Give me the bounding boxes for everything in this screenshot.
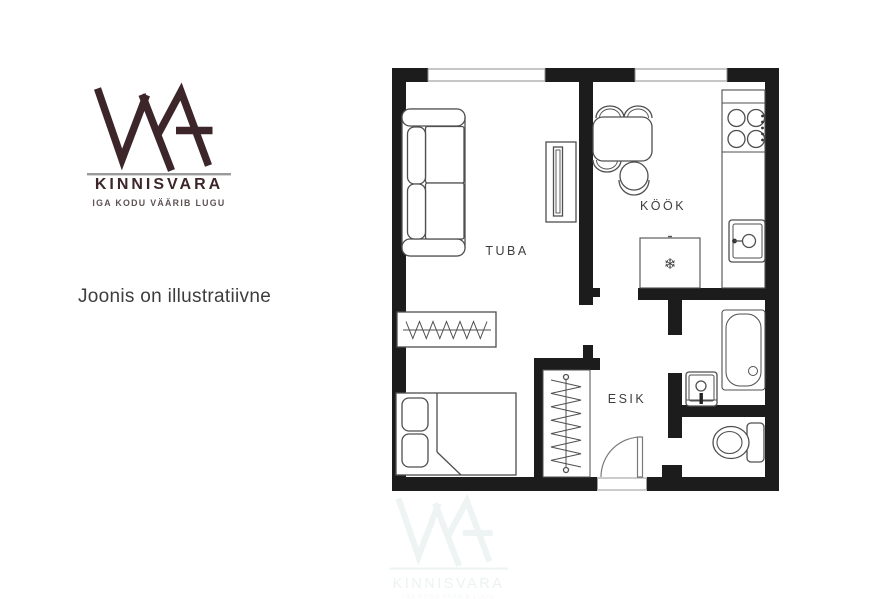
bathroom-sink-drain [696, 381, 706, 391]
wall-closet-top [534, 358, 600, 370]
sofa-seat-2 [426, 183, 465, 239]
tv-stand [546, 142, 576, 222]
dining-table [593, 117, 652, 161]
burner-3 [728, 131, 745, 148]
closet-rail-end-bottom [564, 468, 569, 473]
window-tuba [428, 69, 545, 81]
burner-1 [728, 110, 745, 127]
sofa [402, 109, 465, 256]
room-label-kook: KÖÖK [640, 199, 686, 213]
company-tagline: IGA KODU VÄÄRIB LUGU [84, 198, 234, 208]
bathtub-basin [726, 314, 761, 386]
toilet-bowl-inner [717, 432, 742, 454]
monogram-strokes [98, 89, 213, 171]
fridge: ❄ [640, 237, 700, 289]
room-label-esik: ESIK [608, 392, 647, 406]
window-kook [635, 69, 727, 81]
kitchen-counter [722, 90, 765, 288]
sofa-armrest-bottom [402, 239, 465, 256]
room-label-tuba: TUBA [485, 244, 528, 258]
dining-chair-2 [624, 106, 652, 118]
company-logo-monogram [80, 80, 235, 180]
wall-bottom-right [647, 477, 779, 491]
wall-bath-wc-divider [668, 405, 765, 417]
entrance-door [598, 437, 647, 490]
door-leaf [638, 437, 643, 477]
illustrative-note: Joonis on illustratiivne [78, 286, 271, 308]
watermark-logo: KINNISVARA IGA KODU VÄÄRIB LUGU [385, 493, 515, 599]
bathroom-sink-tap [700, 393, 703, 404]
bathroom-sink [686, 372, 717, 406]
toilet [713, 423, 764, 462]
bed [396, 393, 516, 475]
bathtub-drain [749, 367, 758, 376]
wall-divider-stub [593, 288, 600, 297]
door-swing-arc [601, 437, 641, 477]
dining-chair-1 [596, 106, 624, 118]
wall-closet-right-stub [583, 345, 593, 358]
wall-bathroom-left-upper [668, 288, 682, 335]
kitchen-sink-drain [743, 235, 756, 248]
wardrobe [397, 312, 496, 347]
closet-rail-end-top [564, 375, 569, 380]
watermark-company-name: KINNISVARA [393, 576, 505, 592]
bed-pillow-2 [402, 434, 428, 467]
floor-plan: ❄ [392, 68, 779, 491]
watermark-divider-line [390, 568, 508, 570]
tv-screen-inner [556, 150, 560, 213]
wall-right [765, 68, 779, 491]
wall-wc-stub [662, 465, 682, 477]
sofa-back-cushion-2 [408, 184, 426, 239]
watermark-monogram [398, 498, 492, 565]
monogram-v-stroke [98, 89, 147, 160]
kitchen-sink [729, 220, 765, 262]
company-name: KINNISVARA [84, 176, 234, 194]
bathtub [722, 310, 765, 390]
sofa-seat-1 [426, 127, 465, 184]
burner-2 [748, 110, 765, 127]
wall-closet-left [534, 358, 543, 477]
dining-chair-3 [593, 160, 621, 172]
wall-bottom-left [392, 477, 597, 491]
door-threshold [598, 478, 647, 490]
dining-set [593, 106, 652, 195]
wall-kitchen-bottom [638, 288, 765, 300]
fridge-snowflake-icon: ❄ [664, 256, 677, 273]
sofa-back-cushion-1 [408, 127, 426, 184]
wall-tuba-kook-divider [579, 68, 593, 305]
stool [620, 162, 648, 190]
closet-rail [543, 370, 590, 477]
watermark-tagline: IGA KODU VÄÄRIB LUGU [403, 594, 494, 599]
sofa-armrest-top [402, 109, 465, 126]
wall-wc-left [668, 417, 682, 438]
bed-pillow-1 [402, 398, 428, 431]
